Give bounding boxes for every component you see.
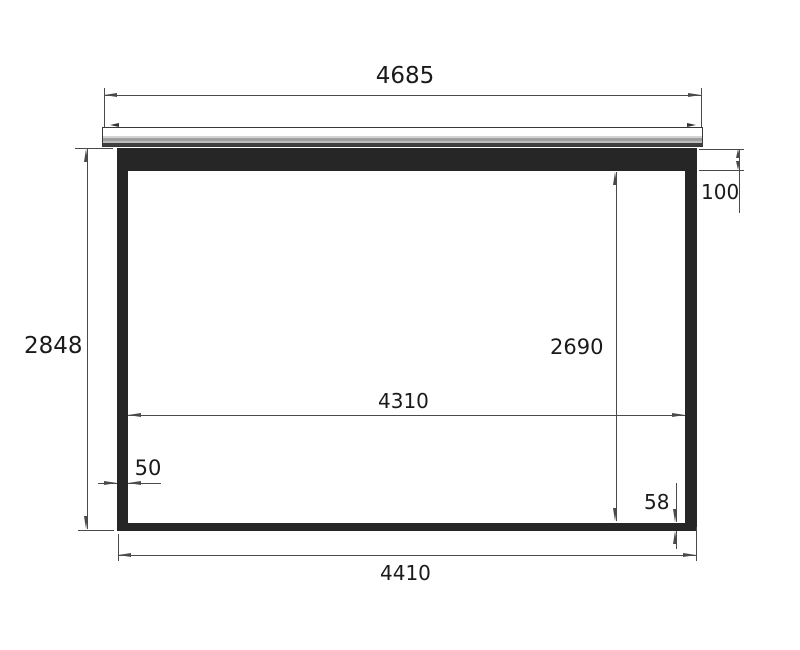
- dim-label-case-width: 4685: [375, 64, 435, 88]
- extension-line: [696, 527, 697, 561]
- dim-label-total-height: 2848: [24, 334, 82, 358]
- arrow-right-icon: [672, 413, 685, 417]
- screen-casing: [102, 127, 703, 147]
- dimension-line: [104, 95, 701, 96]
- arrow-down-icon: [84, 516, 88, 529]
- dim-label-cloth-width: 4410: [380, 563, 428, 584]
- dimension-line: [616, 172, 617, 521]
- arrow-left-icon: [104, 93, 117, 97]
- casing-edge-arrow-right-icon: [687, 123, 696, 127]
- arrow-left-icon: [118, 553, 131, 557]
- dimension-line: [739, 149, 740, 213]
- arrow-left-icon: [128, 481, 141, 485]
- dim-label-side-border: 50: [134, 457, 162, 479]
- arrow-up-icon: [673, 531, 677, 544]
- dim-label-viewing-height: 2690: [550, 336, 602, 358]
- arrow-right-icon: [104, 481, 117, 485]
- extension-line: [699, 170, 744, 171]
- extension-line: [701, 88, 702, 127]
- extension-line: [75, 148, 113, 149]
- screen-dimension-drawing: 4685 2848 100 2690 4310 50: [0, 0, 800, 650]
- screen-cloth: [117, 148, 697, 531]
- casing-edge-arrow-left-icon: [110, 123, 119, 127]
- dim-label-bottom-border: 58: [644, 492, 669, 513]
- arrow-down-icon: [673, 509, 677, 522]
- dim-label-top-border: 100: [701, 182, 737, 203]
- dimension-line: [87, 149, 88, 529]
- arrow-left-icon: [128, 413, 141, 417]
- dimension-line: [118, 555, 696, 556]
- arrow-right-icon: [688, 93, 701, 97]
- dim-label-viewing-width: 4310: [378, 391, 428, 412]
- arrow-right-icon: [683, 553, 696, 557]
- arrow-up-icon: [613, 172, 617, 185]
- dimension-line: [128, 415, 685, 416]
- arrow-up-icon: [84, 149, 88, 162]
- arrow-up-icon: [736, 149, 740, 158]
- extension-line: [78, 530, 114, 531]
- arrow-down-icon: [736, 161, 740, 170]
- arrow-down-icon: [613, 508, 617, 521]
